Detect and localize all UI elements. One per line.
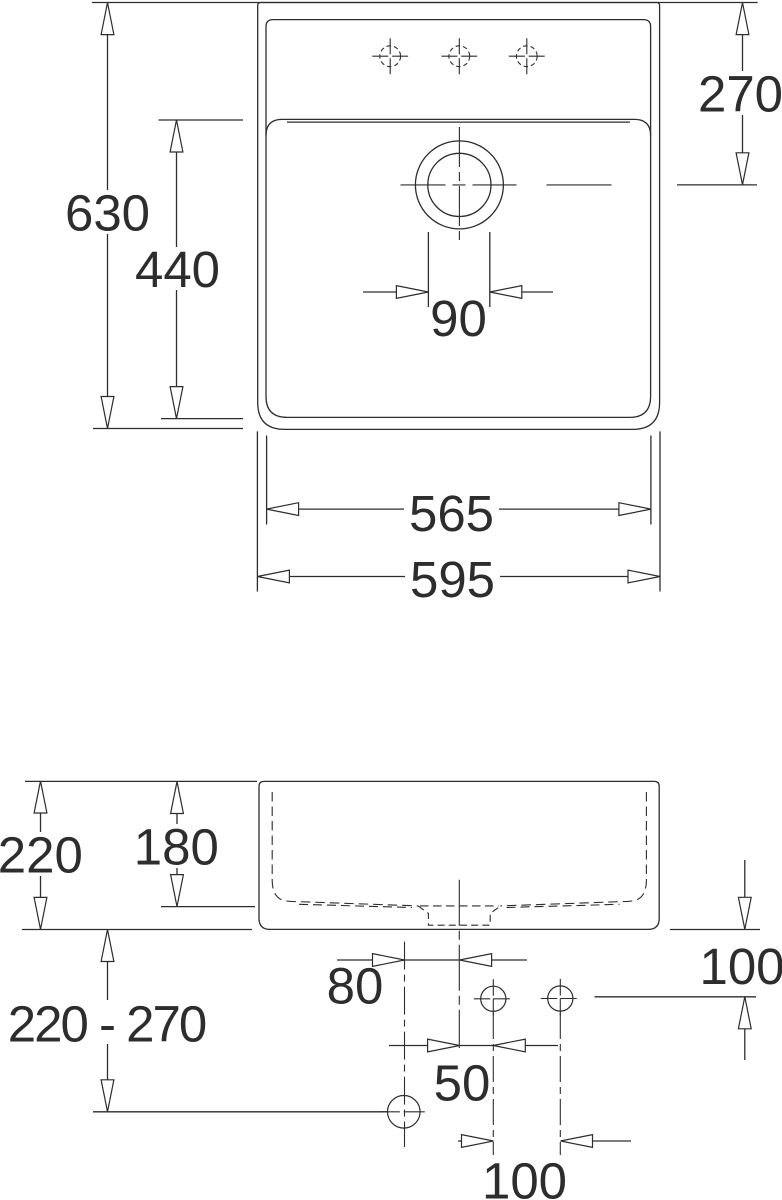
svg-text:440: 440 (135, 241, 220, 298)
svg-text:565: 565 (409, 485, 494, 542)
svg-text:595: 595 (410, 551, 495, 608)
svg-text:50: 50 (434, 1055, 491, 1112)
svg-text:180: 180 (134, 819, 219, 876)
svg-text:100: 100 (482, 1153, 567, 1200)
svg-text:220 - 270: 220 - 270 (8, 996, 206, 1053)
svg-text:630: 630 (65, 185, 150, 242)
svg-text:220: 220 (0, 827, 83, 884)
svg-text:90: 90 (430, 290, 487, 347)
svg-text:270: 270 (698, 66, 782, 123)
svg-text:80: 80 (327, 958, 384, 1015)
svg-text:100: 100 (699, 938, 782, 995)
